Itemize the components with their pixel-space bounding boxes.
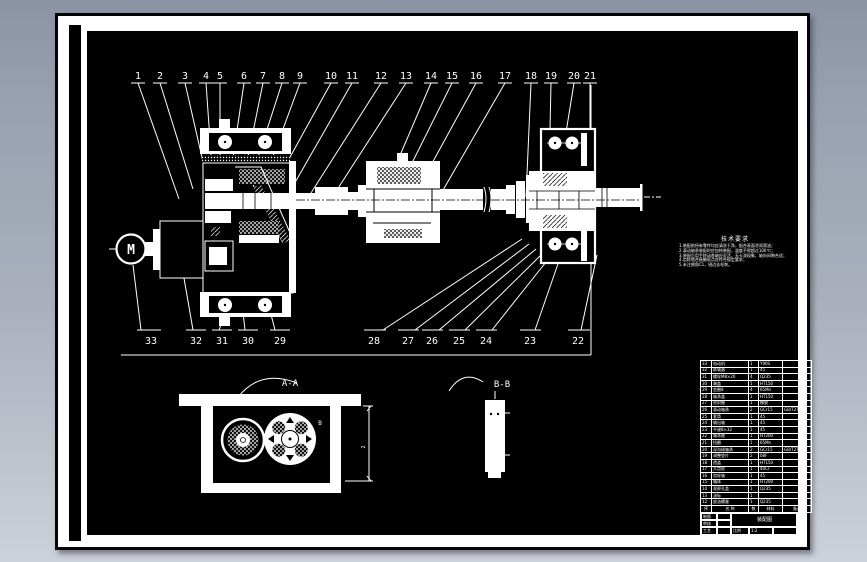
parts-table-row: 20深沟球轴承2GCr15GB/T276: [701, 446, 812, 453]
parts-table-cell: 调整垫片: [712, 453, 749, 460]
callout-label: 9: [297, 71, 303, 82]
parts-table-cell: GCr15: [759, 407, 783, 414]
parts-table-row: 19调整垫片208F: [701, 453, 812, 460]
motor-end-plate: [153, 229, 160, 270]
parts-table-cell: 21: [701, 440, 712, 447]
section-b-arc: [449, 377, 483, 391]
callout-label: 10: [325, 71, 337, 82]
bearing-hatch-bottom: [239, 221, 279, 234]
scale-label: 比例: [731, 527, 749, 534]
title-block-process-label: 工艺: [701, 527, 717, 534]
parts-table-cell: 45: [759, 473, 783, 480]
parts-table-cell: HT150: [759, 393, 783, 400]
parts-table-cell: Q235: [759, 486, 783, 493]
parts-table-cell: [783, 420, 812, 427]
callout-leader: [439, 83, 505, 197]
parts-table-cell: 输出轴: [712, 420, 749, 427]
parts-table-cell: 大齿轮: [712, 466, 749, 473]
parts-table-cell: 29: [701, 387, 712, 394]
parts-table-cell: 油标: [712, 492, 749, 499]
parts-table-header: 序: [701, 506, 712, 513]
parts-table-header: 材料: [759, 506, 783, 513]
parts-table-cell: 密封圈: [712, 400, 749, 407]
callout-label: 33: [145, 336, 157, 347]
callout-label: 24: [480, 336, 492, 347]
shaft-end: [595, 184, 661, 211]
parts-table-cell: 箱体: [712, 479, 749, 486]
callout-label: 29: [274, 336, 286, 347]
parts-table-header: 备注: [783, 506, 812, 513]
callout-label: 6: [241, 71, 247, 82]
callout-label: 26: [426, 336, 438, 347]
callout-label: 12: [375, 71, 387, 82]
parts-table-cell: GB/T276: [783, 407, 812, 414]
parts-table-cell: 滚动轴承: [712, 407, 749, 414]
parts-table-row: 26滚动轴承2GCr15GB/T276: [701, 407, 812, 414]
parts-table-cell: [783, 492, 812, 499]
parts-table-cell: 1: [749, 459, 759, 466]
callout-label: 5: [217, 71, 223, 82]
parts-table-row: 30端盖1HT150: [701, 380, 812, 387]
parts-table-cell: 深沟球轴承: [712, 446, 749, 453]
drawing-sheet: 1234567891011121314151617181920213332313…: [55, 13, 810, 550]
parts-table-row: 25套筒145: [701, 413, 812, 420]
bearing-hatch-top: [239, 169, 285, 184]
parts-table-row: 32联轴器145: [701, 367, 812, 374]
callout-label: 7: [260, 71, 266, 82]
section-a-label: A-A: [282, 379, 299, 389]
parts-table-cell: 20: [701, 446, 712, 453]
binding-margin-bar: [69, 25, 81, 541]
tech-requirements-title: 技术要求: [679, 234, 791, 243]
parts-table-cell: 1: [749, 492, 759, 499]
parts-table-cell: 27: [701, 400, 712, 407]
callout-label: 27: [402, 336, 414, 347]
title-block-cell: [717, 513, 731, 520]
parts-table-cell: 1: [749, 367, 759, 374]
parts-table-cell: 齿轮轴: [712, 473, 749, 480]
parts-list: 33电动机1Y90S32联轴器14531螺栓M8×204Q23530端盖1HT1…: [700, 360, 796, 536]
motor: M: [109, 221, 218, 278]
callout-leader: [160, 83, 193, 189]
parts-table-cell: 45: [759, 426, 783, 433]
callout-label: 17: [499, 71, 511, 82]
parts-table-cell: 15: [701, 479, 712, 486]
parts-table-cell: 1: [749, 440, 759, 447]
callout-label: 15: [446, 71, 458, 82]
title-block-cell: [717, 527, 731, 534]
parts-table-cell: 2: [749, 453, 759, 460]
parts-table-cell: 28: [701, 393, 712, 400]
parts-table-row: 22轴承座1HT200: [701, 433, 812, 440]
aa-dimension: [345, 406, 373, 481]
parts-table-cell: [783, 361, 812, 368]
parts-table-cell: 联轴器: [712, 367, 749, 374]
parts-table-cell: 1: [749, 486, 759, 493]
parts-table-cell: 1: [749, 499, 759, 506]
aa-flange: [179, 394, 361, 406]
parts-table-cell: 40Cr: [759, 466, 783, 473]
parts-table: 33电动机1Y90S32联轴器14531螺栓M8×204Q23530端盖1HT1…: [700, 360, 812, 513]
callout-label: 2: [157, 71, 163, 82]
parts-table-cell: [783, 413, 812, 420]
callout-leader: [415, 244, 529, 330]
parts-table-cell: 轴承盖: [712, 393, 749, 400]
parts-table-cell: [783, 374, 812, 381]
parts-table-cell: 45: [759, 413, 783, 420]
callout-label: 19: [545, 71, 557, 82]
motor-body: [160, 221, 208, 278]
drawing-name: 装配图: [731, 513, 797, 528]
callout-leader: [465, 253, 543, 330]
parts-table-cell: 32: [701, 367, 712, 374]
callout-label: 23: [524, 336, 536, 347]
parts-table-row: 28轴承盖1HT150: [701, 393, 812, 400]
callout-leader: [138, 83, 179, 199]
parts-table-cell: 45: [759, 367, 783, 374]
parts-table-cell: [783, 426, 812, 433]
parts-table-header: 名 称: [712, 506, 749, 513]
callout-label: 8: [279, 71, 285, 82]
parts-table-cell: 1: [749, 413, 759, 420]
section-b-mark-2: B: [318, 420, 322, 427]
parts-table-row: 27密封圈1橡胶: [701, 400, 812, 407]
callout-label: 13: [400, 71, 412, 82]
inner-shaft: [233, 193, 295, 209]
parts-table-cell: 12: [701, 499, 712, 506]
callout-label: 16: [470, 71, 482, 82]
callout-label: 20: [568, 71, 580, 82]
parts-table-cell: 1: [749, 420, 759, 427]
tech-requirements: 技术要求 1.装配前所有零件均应清洗干净，配合表面涂润滑油；2.滚动轴承装配时应…: [679, 234, 791, 268]
parts-table-cell: HT200: [759, 433, 783, 440]
aa-dim-value: 2: [361, 445, 367, 448]
parts-table-cell: [783, 400, 812, 407]
screenshot-root: { "colors":{"background_top":"#8a94a5","…: [0, 0, 867, 562]
parts-table-cell: 螺栓M8×20: [712, 374, 749, 381]
parts-table-cell: HT150: [759, 380, 783, 387]
parts-table-cell: 33: [701, 361, 712, 368]
title-block-check-label: 审核: [701, 520, 717, 527]
parts-table-row: 29垫圈8465Mn: [701, 387, 812, 394]
parts-table-cell: 18: [701, 459, 712, 466]
title-block-cell: [773, 527, 797, 534]
parts-table-cell: 电动机: [712, 361, 749, 368]
tech-requirements-lines: 1.装配前所有零件均应清洗干净，配合表面涂润滑油；2.滚动轴承装配时应加热装配，…: [679, 244, 791, 268]
parts-table-cell: 16: [701, 473, 712, 480]
parts-table-cell: 观察孔盖: [712, 486, 749, 493]
callout-label: 18: [525, 71, 537, 82]
parts-table-cell: 端盖: [712, 380, 749, 387]
parts-table-cell: Q235: [759, 374, 783, 381]
top-stud: [219, 119, 230, 128]
parts-table-cell: HT200: [759, 479, 783, 486]
coupling-hatch-bottom: [384, 229, 422, 238]
scale-value: 1:2: [749, 527, 773, 534]
parts-table-cell: [783, 499, 812, 506]
parts-table-cell: [783, 453, 812, 460]
parts-table-cell: 1: [749, 433, 759, 440]
callout-label: 28: [368, 336, 380, 347]
parts-table-cell: 19: [701, 453, 712, 460]
coupling-block: [358, 153, 440, 243]
parts-table-row: 17大齿轮140Cr: [701, 466, 812, 473]
callout-label: 22: [572, 336, 584, 347]
parts-table-row: 31螺栓M8×204Q235: [701, 374, 812, 381]
parts-table-cell: 平键8×32: [712, 426, 749, 433]
motor-label: M: [127, 243, 135, 258]
callout-label: 1: [135, 71, 141, 82]
parts-table-cell: 1: [749, 426, 759, 433]
parts-table-cell: 垫圈8: [712, 387, 749, 394]
parts-table-cell: [783, 486, 812, 493]
callout-leader: [581, 255, 597, 330]
parts-table-cell: 14: [701, 486, 712, 493]
parts-table-cell: [783, 459, 812, 466]
parts-table-cell: 1: [749, 466, 759, 473]
parts-table-row: 21挡圈165Mn: [701, 440, 812, 447]
parts-table-row: 23平键8×32145: [701, 426, 812, 433]
coupling-hatch-top: [377, 167, 421, 184]
shaft-right: [440, 175, 535, 223]
callout-label: 25: [453, 336, 465, 347]
parts-table-cell: 17: [701, 466, 712, 473]
parts-table-cell: 1: [749, 473, 759, 480]
parts-table-row: 12放油螺塞1Q235: [701, 499, 812, 506]
window-top-strip: [0, 0, 867, 9]
parts-table-cell: 30: [701, 380, 712, 387]
parts-table-cell: 1: [749, 393, 759, 400]
parts-table-cell: [783, 367, 812, 374]
callout-label: 11: [346, 71, 358, 82]
parts-table-cell: 08F: [759, 453, 783, 460]
parts-table-cell: 45: [759, 420, 783, 427]
motor-shaft-stub: [145, 242, 153, 256]
parts-table-cell: [783, 440, 812, 447]
break-lines: [484, 187, 491, 212]
gasket-strip: [202, 155, 290, 163]
title-block-design-label: 制图: [701, 513, 717, 520]
parts-table-cell: 31: [701, 374, 712, 381]
parts-table-cell: 透盖: [712, 459, 749, 466]
parts-table-cell: 2: [749, 407, 759, 414]
parts-table-cell: 13: [701, 492, 712, 499]
section-b-label: B-B: [494, 380, 510, 390]
housing-right-plate: [289, 161, 296, 293]
parts-table-cell: 橡胶: [759, 400, 783, 407]
cad-linework: 1234567891011121314151617181920213332313…: [87, 31, 798, 535]
parts-table-cell: GB/T276: [783, 446, 812, 453]
parts-table-cell: GCr15: [759, 446, 783, 453]
bearing-block: [529, 129, 595, 263]
parts-table-cell: 65Mn: [759, 440, 783, 447]
parts-table-cell: 2: [749, 446, 759, 453]
parts-table-cell: 23: [701, 426, 712, 433]
callout-leader: [492, 257, 550, 330]
shaft-left: [296, 187, 366, 215]
parts-table-cell: 24: [701, 420, 712, 427]
view-border: [121, 85, 591, 355]
parts-table-cell: 1: [749, 479, 759, 486]
parts-table-row: 16齿轮轴145: [701, 473, 812, 480]
bb-slab: [485, 400, 505, 472]
parts-table-cell: [783, 473, 812, 480]
drawing-canvas: 1234567891011121314151617181920213332313…: [87, 31, 798, 535]
callout-label: 3: [182, 71, 188, 82]
parts-table-cell: [759, 492, 783, 499]
parts-table-cell: [783, 466, 812, 473]
gearbox: [200, 119, 296, 326]
parts-table-row: 14观察孔盖1Q235: [701, 486, 812, 493]
parts-table-row: 18透盖1HT150: [701, 459, 812, 466]
callout-label: 32: [190, 336, 202, 347]
parts-table-cell: 4: [749, 374, 759, 381]
parts-table-cell: 1: [749, 400, 759, 407]
parts-table-cell: [783, 387, 812, 394]
callout-label: 30: [242, 336, 254, 347]
parts-table-cell: 25: [701, 413, 712, 420]
parts-table-header: 数: [749, 506, 759, 513]
parts-table-cell: 65Mn: [759, 387, 783, 394]
parts-table-cell: [783, 433, 812, 440]
parts-table-cell: 挡圈: [712, 440, 749, 447]
parts-table-cell: [783, 479, 812, 486]
parts-table-cell: 轴承座: [712, 433, 749, 440]
parts-table-row: 33电动机1Y90S: [701, 361, 812, 368]
parts-table-cell: [783, 380, 812, 387]
section-b-mark-1: B: [277, 400, 281, 407]
parts-table-cell: 26: [701, 407, 712, 414]
callout-label: 4: [203, 71, 209, 82]
parts-table-cell: 1: [749, 361, 759, 368]
parts-table-cell: 4: [749, 387, 759, 394]
title-block: 制图 装配图 审核 工艺 比例 1:2: [700, 513, 798, 536]
section-a-a: A-A B B: [179, 378, 373, 493]
callout-label: 21: [584, 71, 596, 82]
parts-table-cell: HT150: [759, 459, 783, 466]
parts-table-cell: 1: [749, 380, 759, 387]
tech-requirement-line: 5.未注倒角C1，锐边去毛刺。: [679, 263, 791, 268]
callout-label: 14: [425, 71, 437, 82]
section-b-b: B-B: [449, 377, 510, 478]
title-block-cell: [717, 520, 731, 527]
parts-table-row: 15箱体1HT200: [701, 479, 812, 486]
bottom-stud: [219, 317, 230, 326]
parts-table-cell: Y90S: [759, 361, 783, 368]
parts-table-cell: [783, 393, 812, 400]
callout-label: 31: [216, 336, 228, 347]
callout-leader: [383, 239, 522, 330]
parts-table-cell: 套筒: [712, 413, 749, 420]
parts-table-row: 13油标1: [701, 492, 812, 499]
parts-table-cell: 放油螺塞: [712, 499, 749, 506]
parts-table-row: 24输出轴145: [701, 420, 812, 427]
parts-table-cell: 22: [701, 433, 712, 440]
callout-leader: [133, 265, 141, 330]
parts-table-cell: Q235: [759, 499, 783, 506]
